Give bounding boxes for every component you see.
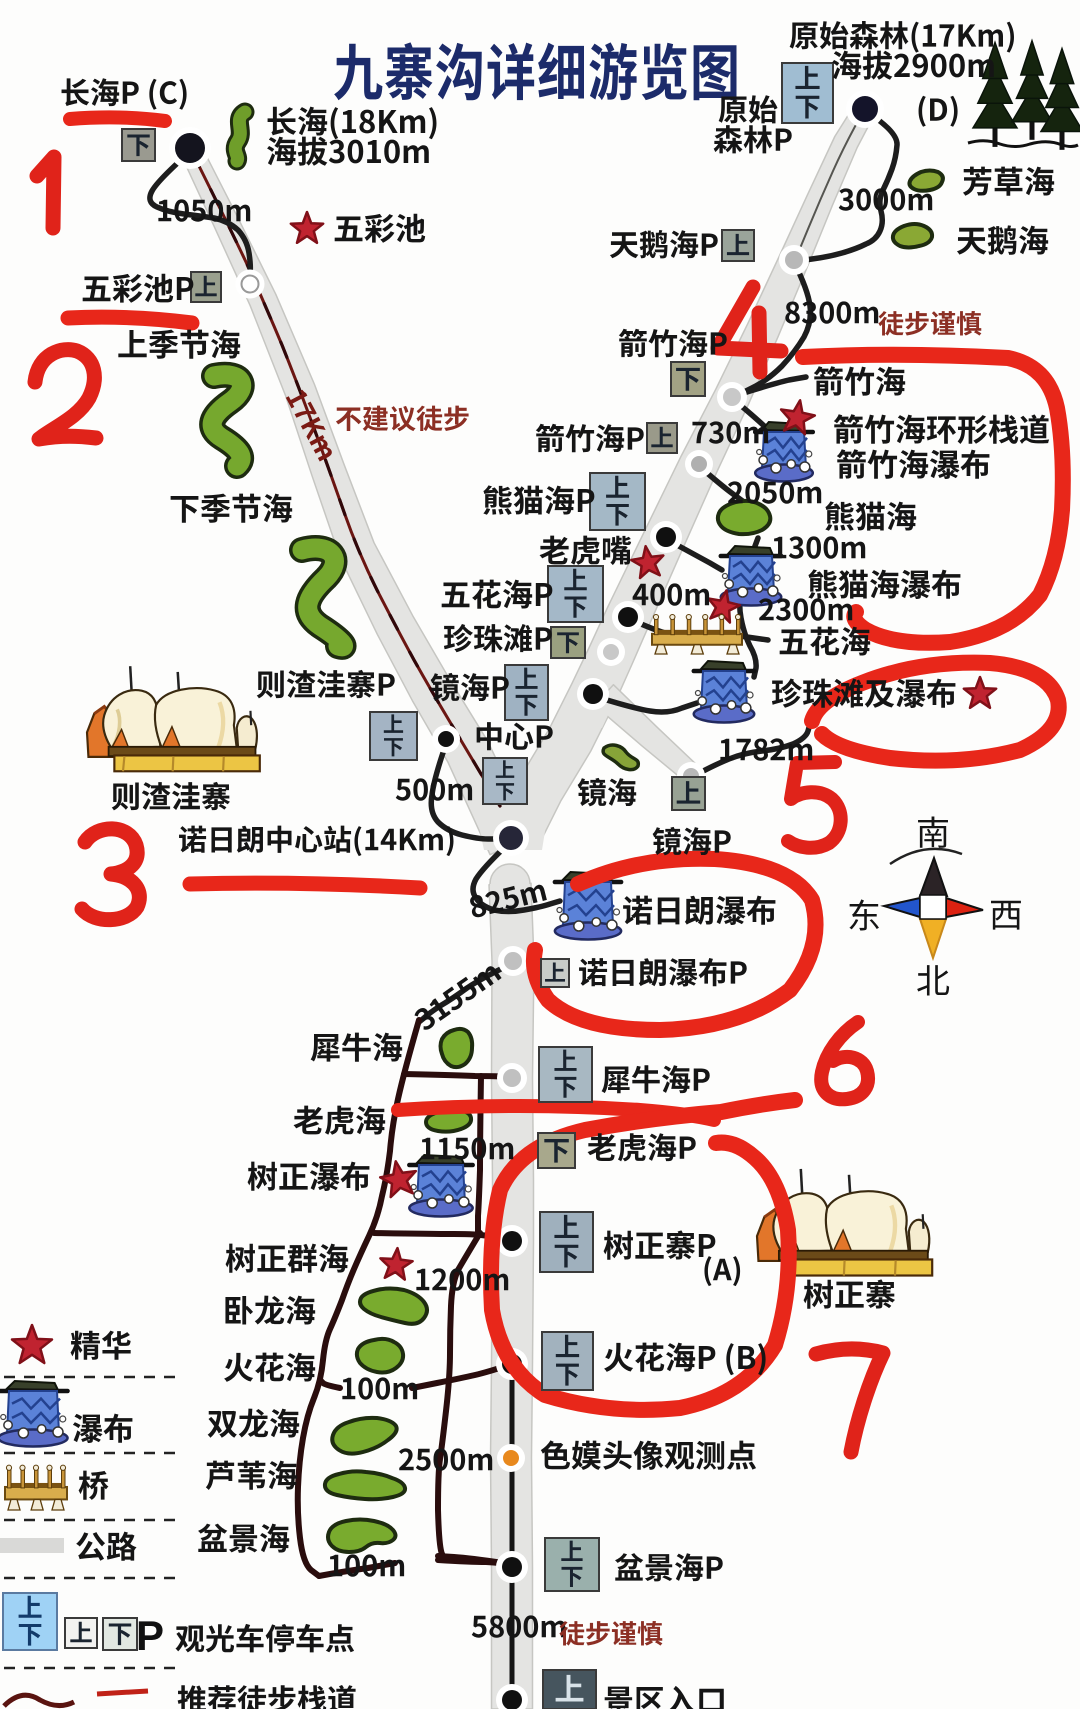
svg-text:P: P bbox=[136, 1612, 164, 1659]
